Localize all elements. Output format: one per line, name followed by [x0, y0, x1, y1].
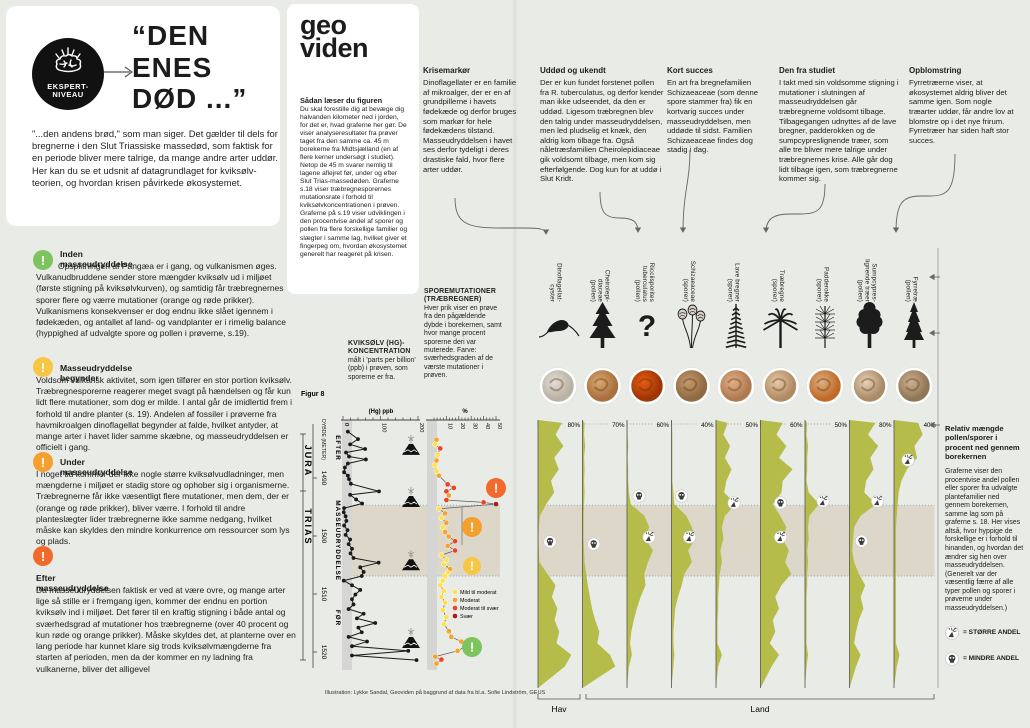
depth-tick-label: 1520: [320, 645, 327, 660]
stage-label: MASSEUDRYDDELSE: [334, 500, 341, 581]
hg-sample-point: [350, 583, 354, 587]
spore-photo: [717, 367, 755, 405]
hg-sample-point: [342, 470, 346, 474]
party-icon: [643, 531, 655, 543]
mutation-sample-point: [438, 583, 443, 588]
skull-icon: [588, 538, 600, 550]
hg-sample-point: [344, 519, 348, 523]
rotated-label: Cheirolepi-diaceae(pollen): [590, 270, 611, 302]
stage-label: FØR: [334, 610, 341, 626]
hg-sample-point: [344, 514, 348, 518]
mutation-sample-point: [455, 648, 460, 653]
species-icon-pine: [904, 302, 924, 348]
svg-text:!: !: [470, 520, 474, 535]
mini-axis-label: 50%: [835, 422, 848, 429]
hg-sample-point: [343, 466, 347, 470]
skull-icon: [544, 536, 556, 548]
hg-sample-point: [363, 447, 367, 451]
species-icon-fern: [726, 304, 746, 348]
annotation-connector: [455, 198, 546, 234]
species-icon-conifer: [590, 302, 616, 348]
mini-axis-label: 40%: [701, 422, 714, 429]
mutation-sample-point: [443, 600, 448, 605]
spore-photo: [851, 367, 889, 405]
mutation-sample-point: [440, 608, 445, 613]
rotated-label: Træbregne(sporer): [771, 270, 785, 303]
hg-sample-point: [347, 455, 351, 459]
mini-axis-label: 40%: [924, 422, 937, 429]
hg-sample-point: [344, 451, 348, 455]
mutation-sample-point: [434, 437, 439, 442]
warning-icon: !: [486, 478, 506, 498]
spore-photo: [895, 367, 933, 405]
spore-photo: [628, 367, 666, 405]
svg-text:!: !: [470, 640, 474, 655]
spore-photo: [584, 367, 622, 405]
hg-sample-point: [349, 552, 353, 556]
mutation-sample-point: [445, 482, 450, 487]
stage-label: EFTER: [334, 435, 341, 461]
species-icon-horsetail: [815, 306, 835, 348]
hg-sample-point: [358, 565, 362, 569]
svg-text:!: !: [494, 481, 498, 496]
figure: JURATRIASFigur 81490150015101520DYBDE (M…: [0, 0, 1030, 728]
mutation-sample-point: [433, 442, 438, 447]
magazine-spread: EKSPERT- NIVEAU “DEN ENES DØD ...” "...d…: [0, 0, 1030, 728]
mutation-sample-point: [441, 589, 446, 594]
species-icon-question: ?: [638, 310, 656, 343]
party-icon: [774, 531, 786, 543]
hg-sample-point: [350, 547, 354, 551]
warning-icon: !: [463, 557, 481, 575]
species-icon-swamp-cypress: [857, 302, 883, 348]
hg-sample-point: [347, 635, 351, 639]
hg-sample-point: [360, 502, 364, 506]
rotated-label: Schizaeaceae(sporer): [682, 261, 696, 303]
mutation-sample-point: [443, 511, 448, 516]
mini-axis-label: 80%: [879, 422, 892, 429]
mutation-sample-point: [452, 539, 457, 544]
hg-sample-point: [347, 477, 351, 481]
hg-sample-point: [415, 658, 419, 662]
period-label-jura: JURA: [303, 445, 313, 478]
hg-sample-point: [342, 506, 346, 510]
hg-sample-point: [356, 626, 360, 630]
mutation-sample-point: [438, 446, 443, 451]
mini-axis-label: 70%: [612, 422, 625, 429]
rotated-label: Lave bregner(sporer): [727, 263, 741, 302]
axis-tick-label: 100: [381, 423, 387, 432]
mutation-sample-point: [439, 515, 444, 520]
severity-legend-label: Moderat til svær: [460, 606, 499, 612]
abundance-area-3: [627, 420, 653, 688]
hg-sample-point: [406, 649, 410, 653]
mini-axis-label: 50%: [746, 422, 759, 429]
hg-sample-point: [360, 630, 364, 634]
mutation-sample-point: [440, 525, 445, 530]
mutation-sample-point: [432, 463, 437, 468]
hg-sample-point: [362, 570, 366, 574]
party-icon: [728, 497, 740, 509]
hg-sample-point: [358, 588, 362, 592]
rotated-label: Dinoflagellat-cyster: [549, 263, 563, 302]
mutation-sample-point: [435, 452, 440, 457]
hg-sample-point: [365, 640, 369, 644]
warning-icon: !: [462, 517, 482, 537]
hg-sample-point: [349, 482, 353, 486]
hg-sample-point: [347, 542, 351, 546]
svg-text:!: !: [470, 560, 474, 573]
rotated-label: Padderokke(sporer): [816, 267, 830, 302]
mutation-sample-point: [434, 468, 439, 473]
land-bracket: [586, 694, 934, 699]
hg-sample-point: [362, 612, 366, 616]
hg-sample-point: [373, 621, 377, 625]
hg-sample-point: [344, 533, 348, 537]
hg-sample-point: [342, 579, 346, 583]
severity-legend-label: Moderat: [460, 598, 480, 604]
mini-axis-label: 60%: [790, 422, 803, 429]
period-label-trias: TRIAS: [303, 509, 313, 546]
party-icon: [817, 495, 829, 507]
mutation-sample-point: [436, 506, 441, 511]
mutation-sample-point: [445, 543, 450, 548]
hav-bracket: [538, 694, 580, 699]
annotation-connector: [766, 184, 825, 232]
hg-sample-point: [348, 442, 352, 446]
species-icon-spore-sprouts: [678, 305, 705, 348]
hg-sample-point: [350, 644, 354, 648]
mutation-sample-point: [451, 485, 456, 490]
hg-sample-point: [350, 654, 354, 658]
mutation-sample-point: [446, 493, 451, 498]
axis-tick-label: 40: [484, 423, 490, 429]
rotated-label: Fyrretræ(pollen): [905, 277, 919, 303]
volcano-icon: [402, 487, 420, 507]
axis-tick-label: 20: [459, 423, 465, 429]
severity-legend-dot: [452, 597, 457, 602]
spore-photo: [806, 367, 844, 405]
svg-text:?: ?: [638, 310, 656, 343]
party-icon: [902, 454, 914, 466]
land-label: Land: [751, 704, 770, 714]
annotation-connector: [683, 150, 690, 232]
hg-sample-point: [346, 462, 350, 466]
depth-tick-label: 1500: [320, 529, 327, 544]
hav-label: Hav: [551, 704, 567, 714]
hg-sample-point: [352, 556, 356, 560]
hg-sample-point: [377, 561, 381, 565]
annotation-connector: [896, 154, 955, 232]
severity-legend-dot: [452, 613, 457, 618]
mutation-sample-point: [444, 615, 449, 620]
axis-tick-label: 10: [447, 423, 453, 429]
mutation-sample-point: [449, 634, 454, 639]
mutation-sample-point: [481, 500, 486, 505]
hg-sample-point: [346, 430, 350, 434]
hg-sample-point: [348, 538, 352, 542]
spore-photo: [673, 367, 711, 405]
mutation-sample-point: [439, 553, 444, 558]
mutation-sample-point: [446, 629, 451, 634]
skull-icon: [855, 535, 867, 547]
hg-sample-point: [350, 597, 354, 601]
volcano-icon: [402, 435, 420, 455]
mutation-sample-point: [433, 654, 438, 659]
axis-title: %: [462, 409, 468, 415]
depth-tick-label: 1490: [320, 471, 327, 486]
rotated-label: Ricciisporitestuberculatus(pollen): [634, 263, 655, 302]
spore-photo: [539, 367, 577, 405]
hg-sample-point: [355, 616, 359, 620]
axis-tick-label: 200: [418, 423, 424, 432]
rotated-label: Sumpcypres-lignende træer(pollen): [857, 259, 878, 302]
spore-photo: [762, 367, 800, 405]
hg-sample-point: [346, 528, 350, 532]
volcano-icon: [402, 628, 420, 648]
hg-sample-point: [353, 593, 357, 597]
mutation-sample-point: [446, 534, 451, 539]
mutation-sample-point: [440, 578, 445, 583]
mutation-sample-point: [441, 622, 446, 627]
species-icon-tree-fern: [764, 309, 798, 348]
mutation-sample-point: [444, 520, 449, 525]
depth-tick-label: 1510: [320, 587, 327, 602]
axis-tick-label: 0: [343, 423, 349, 426]
hg-sample-point: [356, 437, 360, 441]
mini-axis-label: 80%: [568, 422, 581, 429]
mutation-sample-point: [434, 661, 439, 666]
hg-sample-point: [342, 510, 346, 514]
axis-tick-label: 30: [471, 423, 477, 429]
mutation-sample-point: [444, 497, 449, 502]
mutation-sample-point: [452, 548, 457, 553]
mutation-sample-point: [443, 573, 448, 578]
hg-sample-point: [342, 524, 346, 528]
party-icon: [871, 495, 883, 507]
axis-title: (Hg) ppb: [369, 409, 394, 415]
hg-sample-point: [352, 603, 356, 607]
mini-axis-label: 60%: [657, 422, 670, 429]
hg-sample-point: [377, 489, 381, 493]
skull-icon: [633, 490, 645, 502]
severity-legend-label: Svær: [460, 614, 473, 620]
skull-icon: [774, 497, 786, 509]
mutation-zero-strip: [427, 420, 437, 670]
hg-sample-point: [346, 474, 350, 478]
mutation-sample-point: [443, 529, 448, 534]
hg-sample-point: [347, 607, 351, 611]
warning-icon: !: [462, 637, 482, 657]
severity-legend-dot: [452, 589, 457, 594]
mutation-sample-point: [441, 562, 446, 567]
figure-label: Figur 8: [301, 391, 324, 398]
party-icon: [683, 531, 695, 543]
mutation-sample-point: [439, 657, 444, 662]
annotation-connector: [600, 192, 638, 232]
hg-sample-point: [360, 574, 364, 578]
species-icon-dinoflagellate: [539, 320, 579, 337]
mutation-sample-point: [436, 473, 441, 478]
hg-sample-point: [354, 498, 358, 502]
skull-icon: [675, 490, 687, 502]
severity-legend-label: Mild til moderat: [460, 590, 497, 596]
mutation-sample-point: [444, 557, 449, 562]
hg-sample-point: [348, 493, 352, 497]
mutation-sample-point: [493, 502, 498, 507]
mutation-sample-point: [439, 594, 444, 599]
hg-sample-point: [364, 458, 368, 462]
axis-tick-label: 50: [496, 423, 502, 429]
rotated-label: DYBDE (METER): [320, 419, 326, 460]
severity-legend-dot: [452, 605, 457, 610]
